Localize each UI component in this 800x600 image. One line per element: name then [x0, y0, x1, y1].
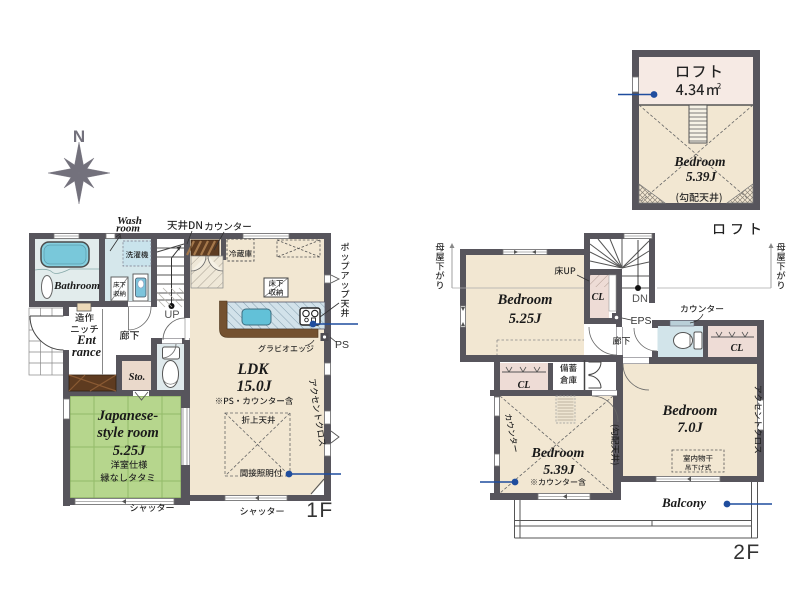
svg-text:N: N — [73, 127, 85, 146]
svg-text:7.0J: 7.0J — [677, 420, 703, 436]
svg-text:5.25J: 5.25J — [113, 443, 146, 459]
svg-text:CL: CL — [592, 292, 605, 303]
svg-text:rance: rance — [72, 345, 102, 359]
svg-text:Japanese-: Japanese- — [97, 408, 159, 424]
svg-text:CL: CL — [731, 343, 744, 354]
svg-text:5.39J: 5.39J — [543, 463, 576, 478]
svg-text:2F: 2F — [733, 541, 761, 564]
svg-text:Bedroom: Bedroom — [531, 446, 585, 461]
svg-text:CL: CL — [518, 380, 531, 391]
svg-text:Sto.: Sto. — [129, 372, 146, 383]
svg-text:PS: PS — [335, 339, 349, 351]
svg-text:LDK: LDK — [237, 361, 271, 378]
svg-text:UP: UP — [164, 309, 179, 321]
svg-text:Balcony: Balcony — [661, 495, 706, 510]
svg-text:style room: style room — [96, 425, 159, 441]
svg-text:Bedroom: Bedroom — [497, 292, 553, 308]
svg-text:5.39J: 5.39J — [686, 169, 718, 184]
svg-text:Bedroom: Bedroom — [673, 154, 725, 169]
svg-text:Bathroom: Bathroom — [53, 280, 100, 292]
svg-text:Bedroom: Bedroom — [662, 403, 718, 419]
svg-text:15.0J: 15.0J — [237, 378, 273, 395]
svg-text:5.25J: 5.25J — [509, 311, 542, 327]
svg-text:1F: 1F — [306, 499, 334, 522]
svg-text:EPS: EPS — [630, 315, 651, 327]
svg-text:DN: DN — [632, 293, 648, 305]
svg-text:room: room — [116, 223, 140, 235]
